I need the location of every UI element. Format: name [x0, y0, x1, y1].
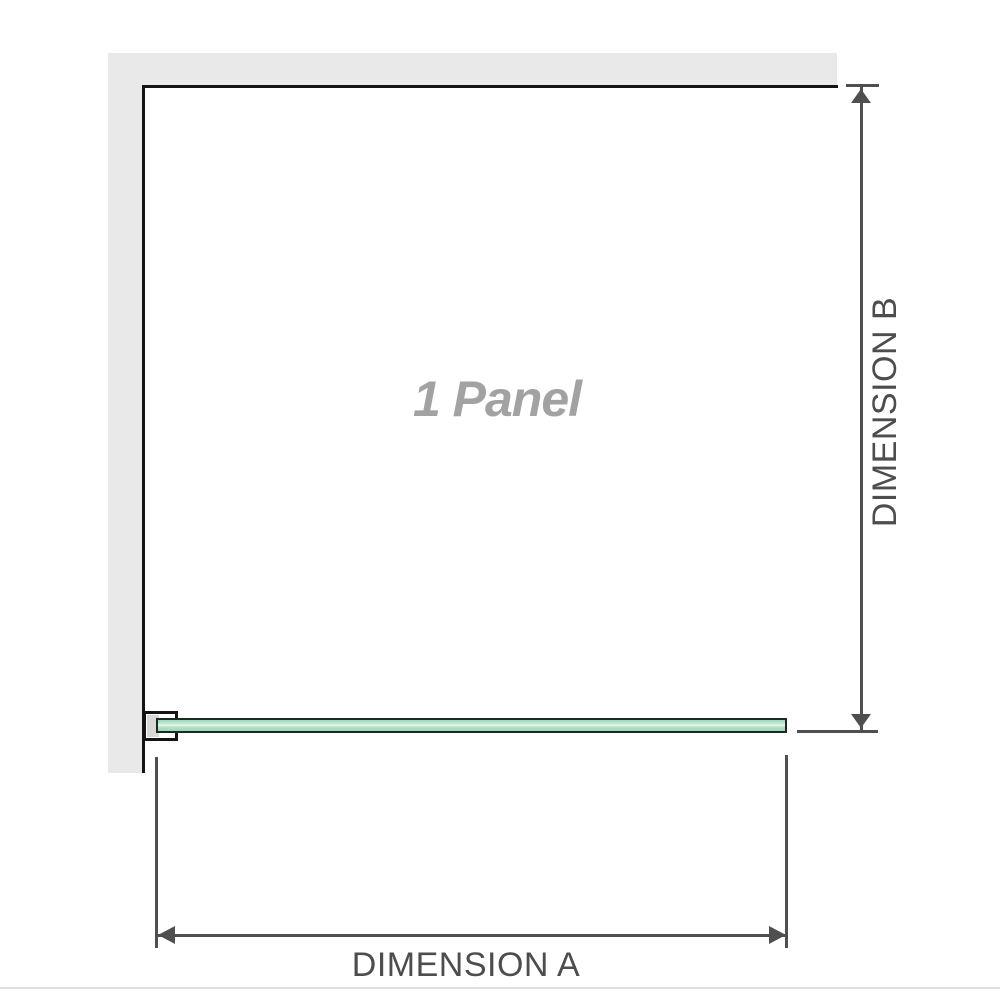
- dim-a-line: [157, 934, 787, 937]
- image-bottom-edge: [0, 987, 1000, 989]
- wall-top: [108, 53, 837, 86]
- dim-a-arrow-right-icon: [769, 926, 786, 944]
- dim-b-arrow-down-icon: [851, 714, 871, 728]
- dim-b-label: DIMENSION B: [866, 297, 905, 527]
- dim-a-ext-right: [785, 755, 788, 948]
- glass-panel: [156, 718, 787, 733]
- dim-a-ext-left: [155, 757, 158, 948]
- dim-b-cap-bottom: [797, 730, 878, 733]
- panel-outline-top: [142, 85, 838, 88]
- panel-count-label: 1 Panel: [413, 370, 581, 428]
- dim-b-line: [860, 86, 863, 731]
- panel-dimension-diagram: 1 Panel DIMENSION B DIMENSION A: [0, 0, 1000, 1000]
- dim-a-label: DIMENSION A: [352, 946, 580, 985]
- wall-left: [108, 53, 142, 773]
- dim-b-arrow-up-icon: [851, 89, 871, 103]
- panel-outline-left: [142, 85, 145, 773]
- dim-a-arrow-left-icon: [158, 926, 175, 944]
